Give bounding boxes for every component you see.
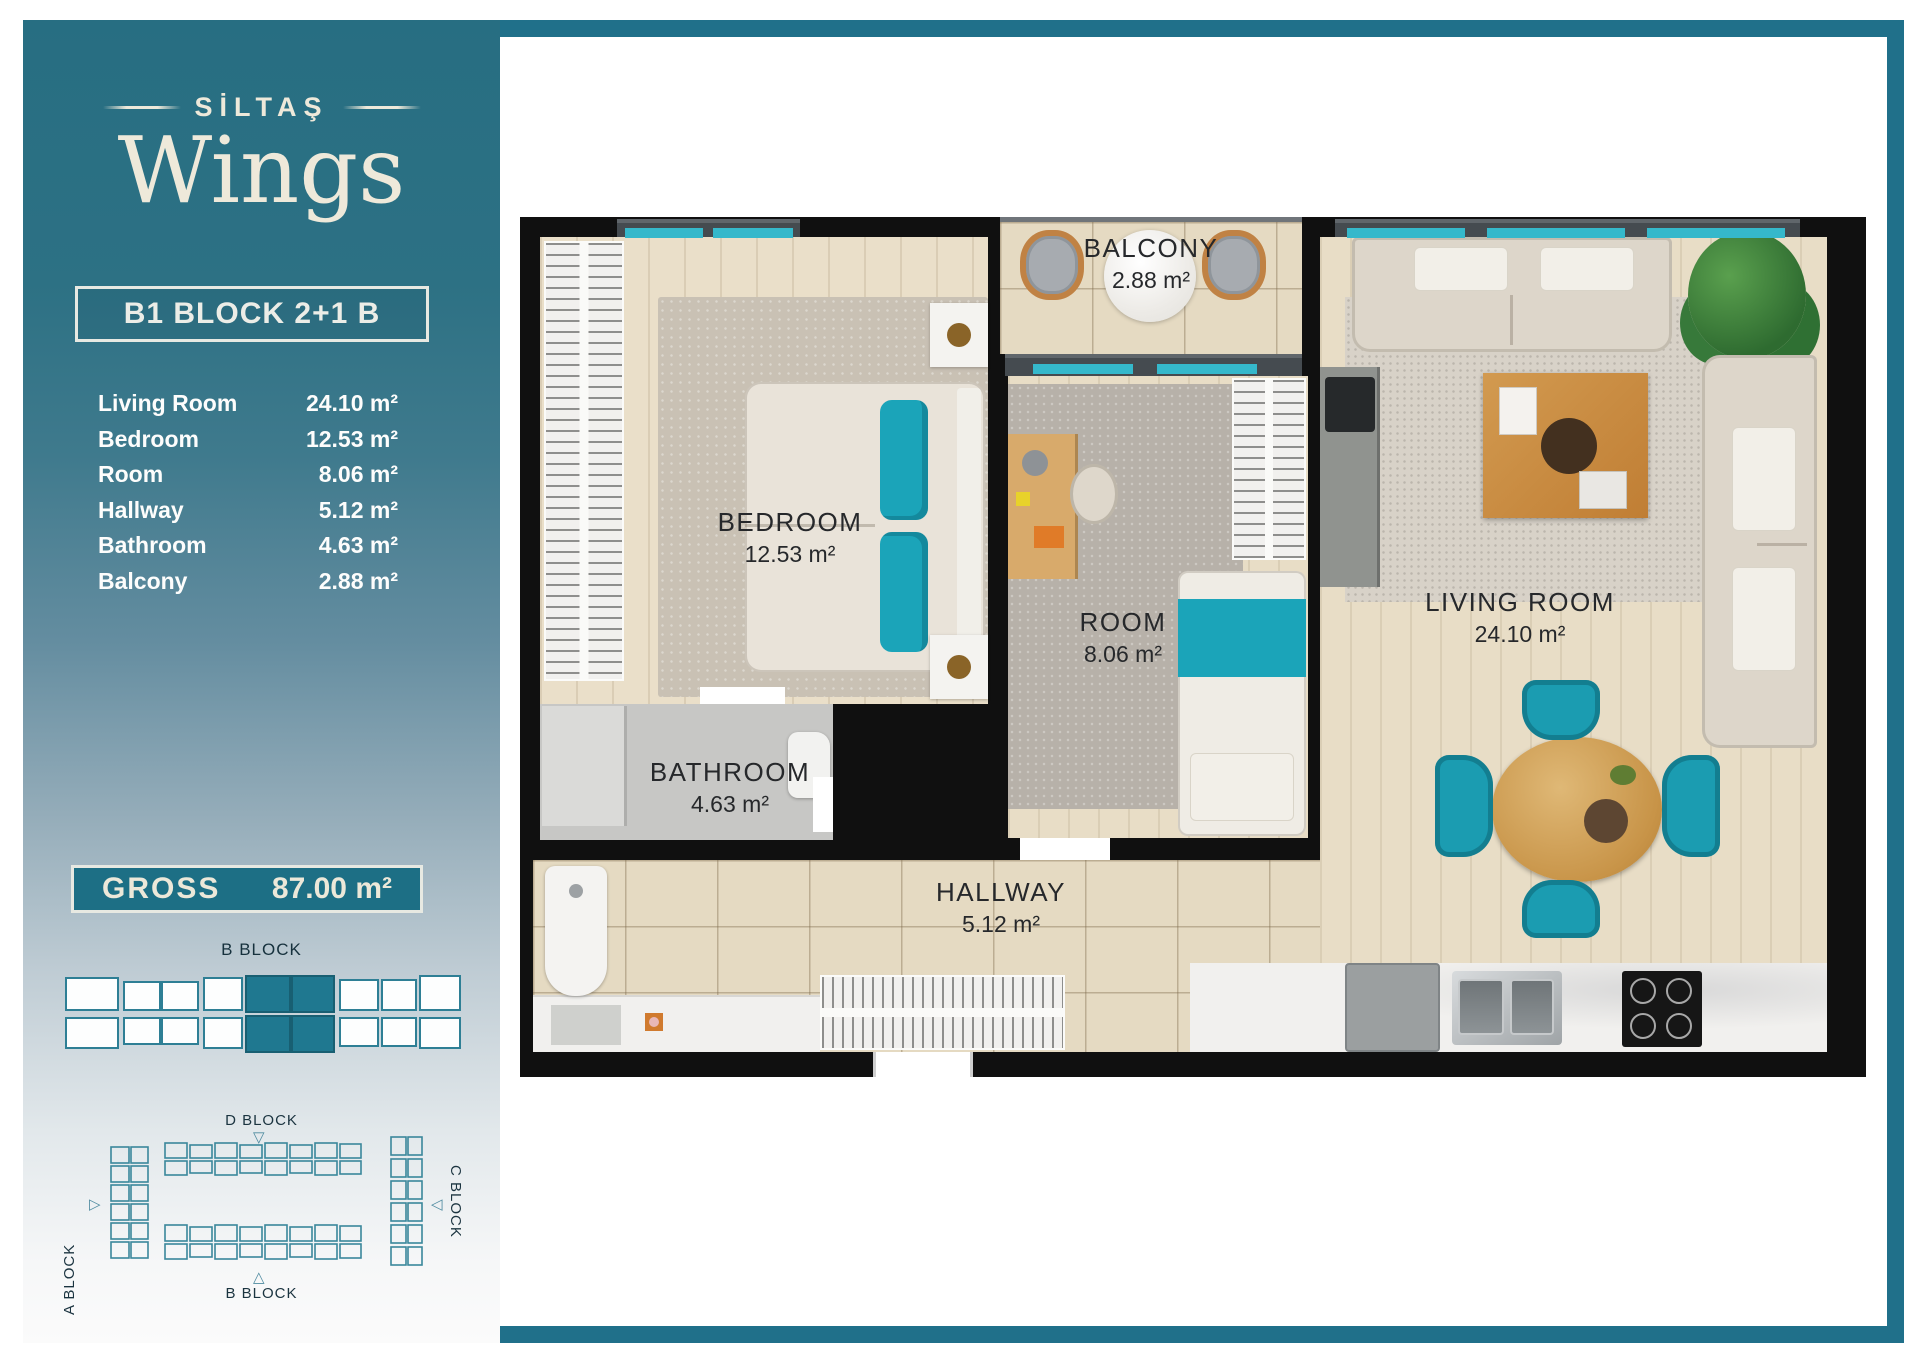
unit-title-box: B1 BLOCK 2+1 B	[75, 286, 429, 342]
dining-plate	[1584, 799, 1628, 843]
brand-logo: SİLTAŞ Wings	[23, 92, 500, 217]
room-area-table: Living Room 24.10 m² Bedroom 12.53 m² Ro…	[98, 386, 398, 599]
single-bed-pillow	[1190, 753, 1294, 821]
sofa-seam	[1510, 295, 1513, 345]
soap-dispenser	[645, 1013, 663, 1031]
sofa-pillow	[1732, 427, 1796, 531]
room-name: Bedroom	[98, 426, 199, 453]
cooktop	[1622, 971, 1702, 1047]
desk-lamp	[1022, 450, 1048, 476]
hallway-closet	[820, 975, 1065, 1050]
desk-chair	[1070, 464, 1118, 524]
unit-title: B1 BLOCK 2+1 B	[124, 297, 381, 331]
triangle-right-icon: ▷	[89, 1195, 101, 1213]
bedroom-window	[617, 219, 800, 237]
triangle-left-icon: ◁	[431, 1195, 443, 1213]
table-row: Balcony 2.88 m²	[98, 564, 398, 600]
site-label-d: D BLOCK	[23, 1112, 500, 1129]
coffee-table	[1483, 373, 1648, 518]
room-area: 2.88 m²	[319, 568, 398, 595]
kitchen-sink-unit	[545, 866, 607, 996]
dining-chair	[1435, 755, 1493, 857]
sofa-pillow	[1540, 247, 1634, 291]
room-area: 5.12 m²	[319, 497, 398, 524]
sink-basin	[1510, 979, 1554, 1035]
table-book	[1499, 387, 1537, 435]
nightstand-decor	[947, 655, 971, 679]
room-label: ROOM 8.06 m²	[1013, 607, 1233, 668]
logo-flourish-left	[103, 106, 181, 109]
living-room-label: LIVING ROOM 24.10 m²	[1375, 587, 1665, 648]
window-glass	[1033, 364, 1133, 374]
block-diagram-label: B BLOCK	[23, 940, 500, 960]
nightstand	[930, 635, 988, 699]
gross-label: GROSS	[102, 872, 220, 906]
site-label-c: C BLOCK	[447, 1165, 464, 1315]
room-area: 4.63 m²	[319, 532, 398, 559]
sidebar: SİLTAŞ Wings B1 BLOCK 2+1 B Living Room …	[23, 20, 500, 1343]
burner	[1666, 1013, 1692, 1039]
block-diagram	[63, 970, 463, 1058]
floor-plan: BEDROOM 12.53 m² BALCONY 2.88 m²	[520, 217, 1866, 1077]
soap-dot	[649, 1017, 659, 1027]
sofa-vertical	[1702, 355, 1817, 748]
window-glass	[1157, 364, 1257, 374]
desk-item-yellow	[1016, 492, 1030, 506]
bedroom-wardrobe	[544, 241, 624, 681]
bedroom-floor	[540, 237, 988, 704]
room-area: 24.10 m²	[306, 390, 398, 417]
bedroom-door	[700, 687, 785, 704]
faucet	[569, 884, 583, 898]
table-row: Bathroom 4.63 m²	[98, 528, 398, 564]
hallway-label: HALLWAY 5.12 m²	[886, 877, 1116, 938]
tv-console	[1320, 367, 1380, 587]
sofa-horizontal	[1352, 237, 1672, 352]
bathroom-label: BATHROOM 4.63 m²	[615, 757, 845, 818]
burner	[1630, 978, 1656, 1004]
plant	[1688, 231, 1806, 359]
desk-item-orange	[1034, 526, 1064, 548]
balcony-label: BALCONY 2.88 m²	[1016, 233, 1286, 294]
site-block-b	[163, 1222, 363, 1264]
living-room-window	[1335, 219, 1800, 237]
table-row: Room 8.06 m²	[98, 457, 398, 493]
burner	[1630, 1013, 1656, 1039]
tv	[1325, 377, 1375, 432]
room-door	[1020, 838, 1110, 860]
sofa-pillow	[1414, 247, 1508, 291]
room-name: Living Room	[98, 390, 237, 417]
site-block-c	[389, 1135, 425, 1270]
triangle-up-icon: △	[253, 1268, 265, 1286]
room-wardrobe	[1232, 378, 1306, 560]
table-row: Hallway 5.12 m²	[98, 493, 398, 529]
table-row: Living Room 24.10 m²	[98, 386, 398, 422]
nightstand-decor	[947, 323, 971, 347]
gross-area-bar: GROSS 87.00 m²	[71, 865, 423, 913]
balcony-window	[1005, 354, 1302, 376]
table-bowl	[1541, 418, 1597, 474]
dining-table	[1492, 737, 1662, 882]
logo-flourish-right	[343, 106, 421, 109]
site-label-b: B BLOCK	[23, 1285, 500, 1302]
window-glass	[1347, 228, 1465, 238]
sink-basin	[1458, 979, 1504, 1035]
room-name: Hallway	[98, 497, 184, 524]
room-name: Bathroom	[98, 532, 207, 559]
fridge	[1345, 963, 1440, 1052]
room-name: Balcony	[98, 568, 187, 595]
table-row: Bedroom 12.53 m²	[98, 422, 398, 458]
counter-inset	[551, 1005, 621, 1045]
window-glass	[713, 228, 793, 238]
nightstand	[930, 303, 988, 367]
room-area: 8.06 m²	[319, 461, 398, 488]
dining-chair	[1522, 680, 1600, 740]
desk	[1008, 434, 1078, 579]
room-area: 12.53 m²	[306, 426, 398, 453]
window-glass	[1487, 228, 1625, 238]
site-block-a	[109, 1145, 151, 1260]
bed-headboard	[957, 388, 981, 666]
table-book	[1579, 471, 1627, 509]
kitchen-steel-sink	[1452, 971, 1562, 1045]
gross-value: 87.00 m²	[272, 872, 392, 906]
dining-salad	[1610, 765, 1636, 785]
window-glass	[625, 228, 703, 238]
burner	[1666, 978, 1692, 1004]
brand-wordmark: Wings	[23, 125, 500, 217]
bed-pillow-teal	[880, 400, 928, 520]
site-plan: D BLOCK ▽ A BLOCK ▷	[23, 1100, 500, 1330]
room-name: Room	[98, 461, 163, 488]
sofa-pillow	[1732, 567, 1796, 671]
kitchen-counter-right	[1190, 963, 1827, 1052]
dining-chair	[1522, 880, 1600, 938]
dining-chair	[1662, 755, 1720, 857]
highlighted-unit	[246, 976, 334, 1052]
page: SİLTAŞ Wings B1 BLOCK 2+1 B Living Room …	[0, 0, 1920, 1357]
kitchen-counter-left	[533, 995, 820, 1052]
entrance-door	[873, 1052, 973, 1077]
site-block-d	[163, 1140, 363, 1180]
sofa-seam	[1757, 543, 1807, 546]
bedroom-label: BEDROOM 12.53 m²	[670, 507, 910, 568]
window-glass	[1647, 228, 1785, 238]
